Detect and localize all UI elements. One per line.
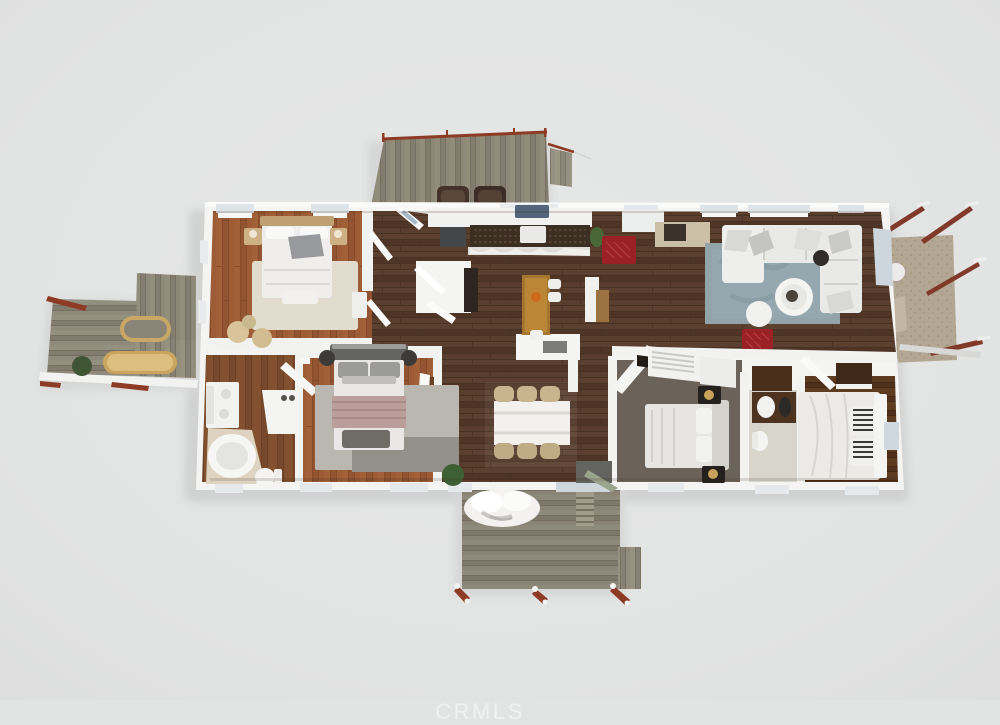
svg-text:CRMLS: CRMLS	[435, 699, 525, 724]
